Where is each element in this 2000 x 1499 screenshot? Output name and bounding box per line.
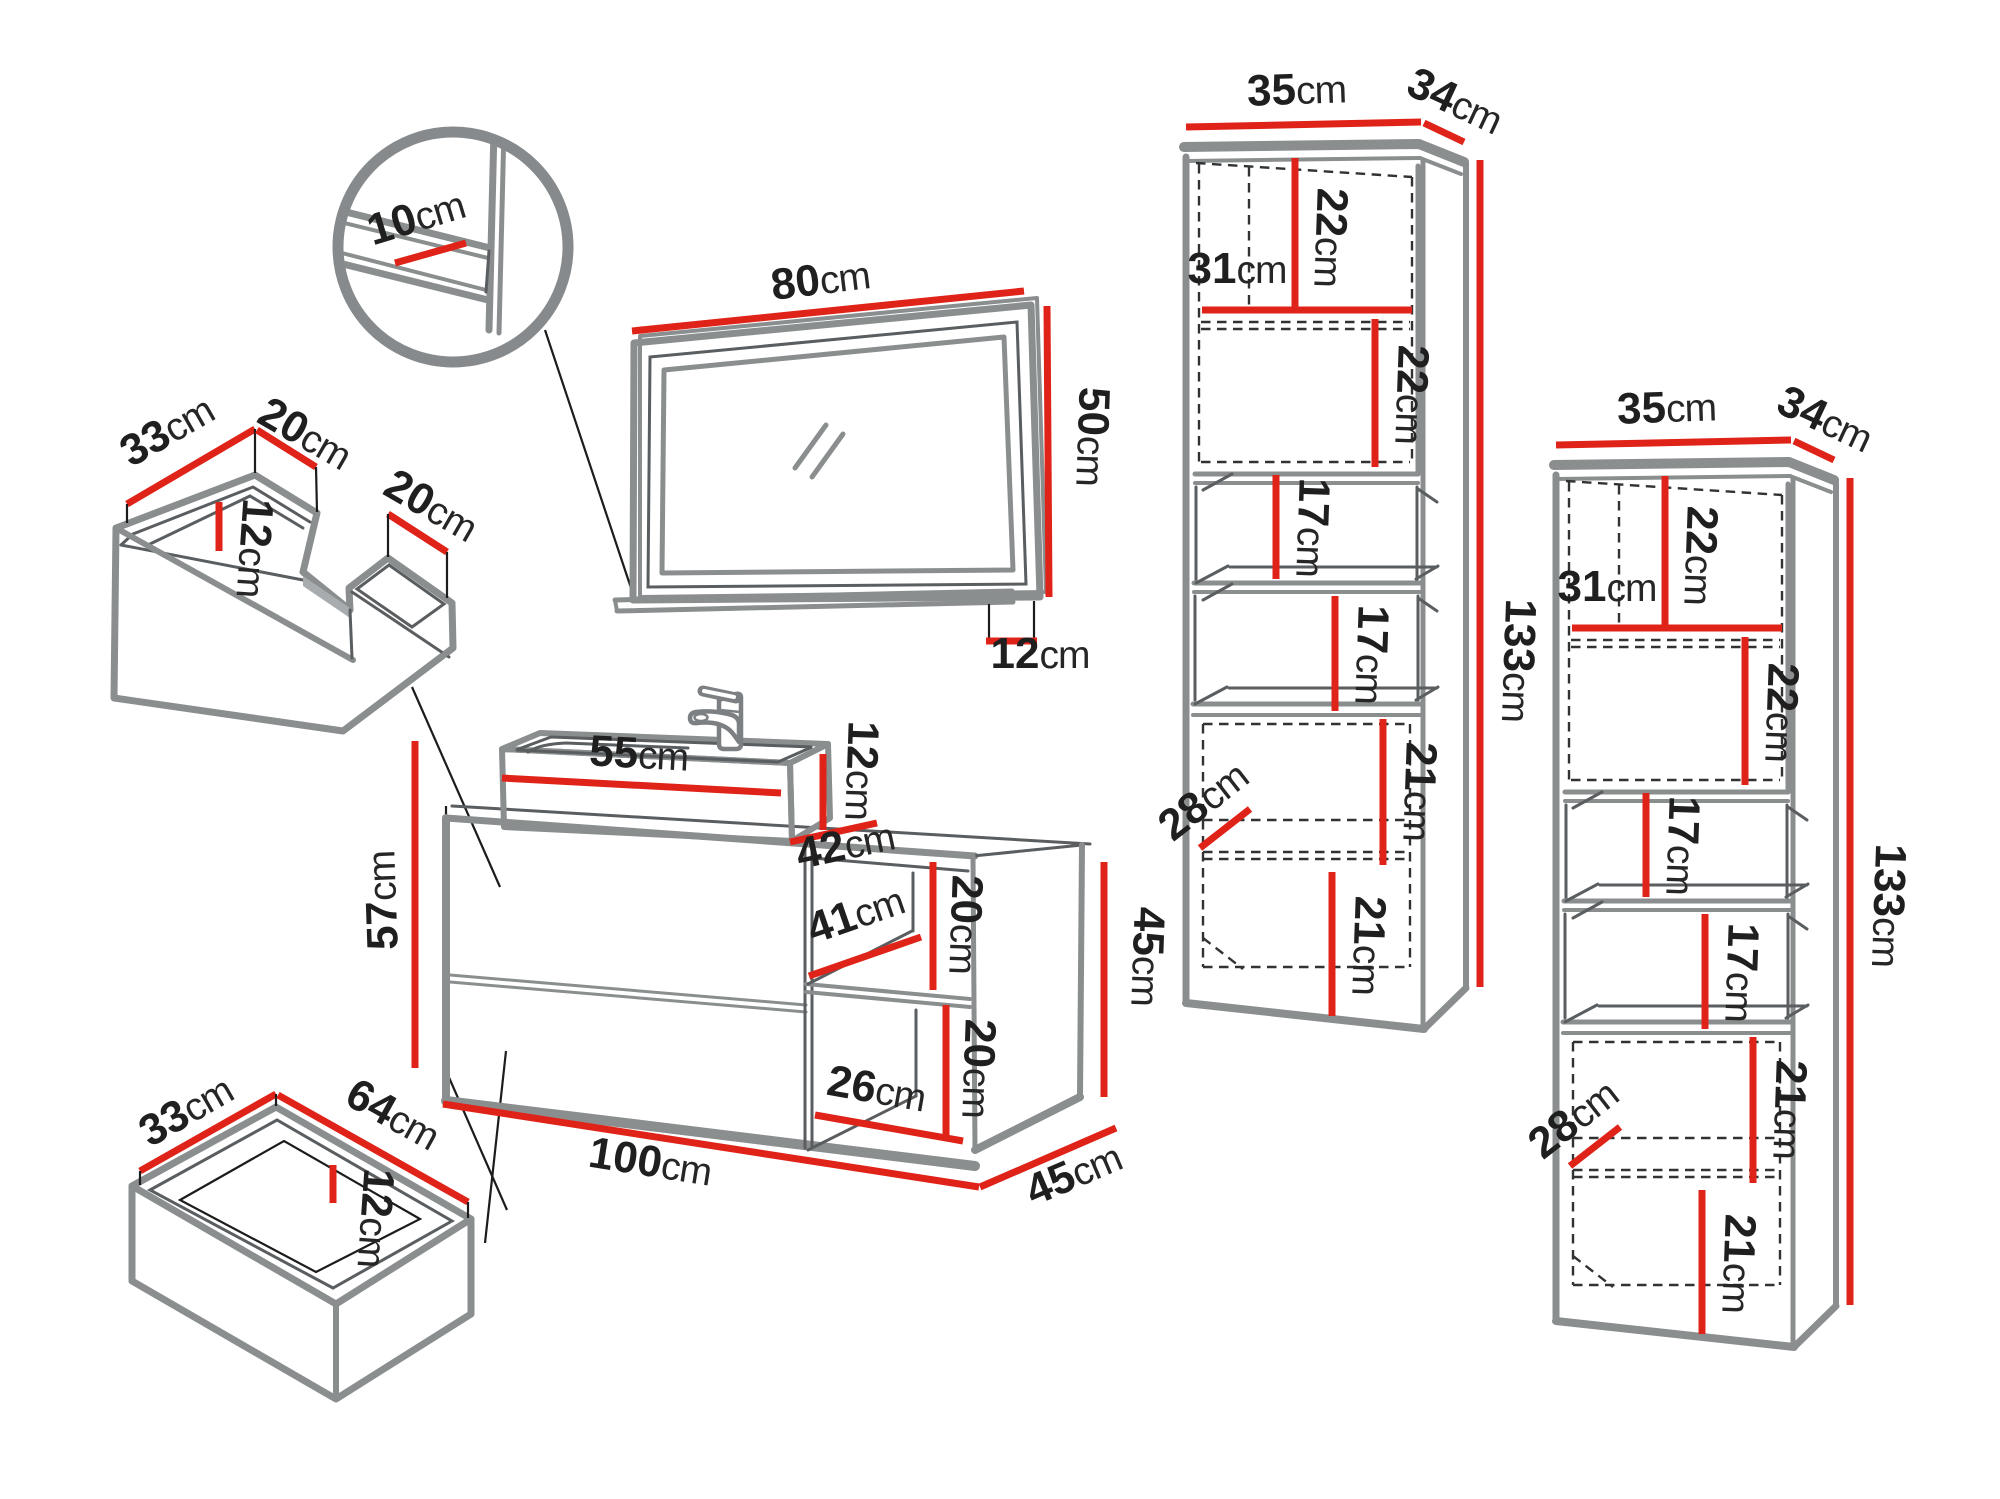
svg-text:12cm: 12cm xyxy=(835,720,887,821)
svg-text:12cm: 12cm xyxy=(991,629,1090,678)
svg-text:20cm: 20cm xyxy=(939,874,991,975)
svg-text:45cm: 45cm xyxy=(1121,906,1173,1007)
svg-text:57cm: 57cm xyxy=(355,850,407,951)
svg-text:50cm: 50cm xyxy=(1066,386,1118,487)
svg-text:20cm: 20cm xyxy=(952,1018,1004,1119)
svg-text:133cm: 133cm xyxy=(1862,843,1915,968)
svg-text:133cm: 133cm xyxy=(1492,598,1545,723)
